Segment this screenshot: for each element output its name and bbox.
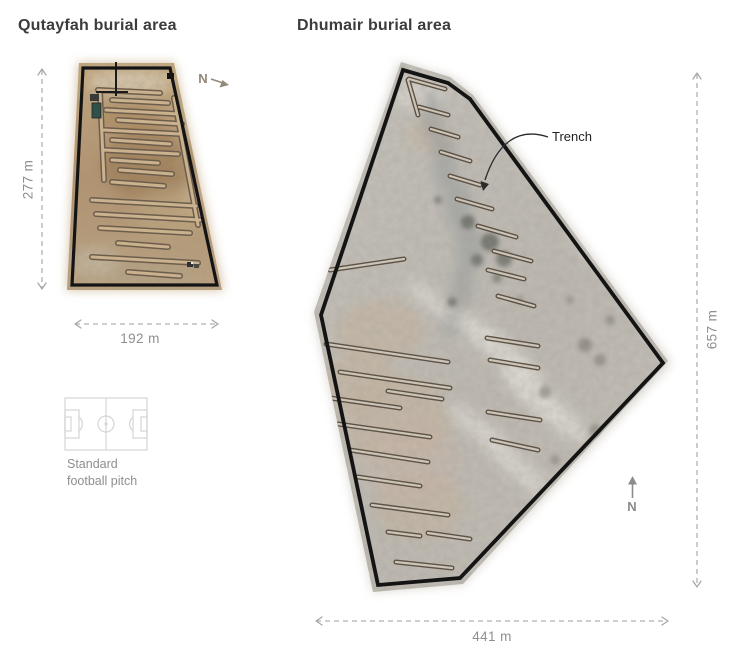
ground-object	[92, 103, 101, 118]
map-graphics	[0, 0, 733, 655]
dhumair-title: Dhumair burial area	[297, 17, 451, 35]
football-pitch-legend-line2: football pitch	[67, 473, 137, 490]
football-pitch-legend-line1: Standard	[67, 456, 137, 473]
dhumair-satellite-image	[310, 58, 675, 598]
qutayfah-boundary-notch	[167, 73, 174, 79]
trench-annotation-label: Trench	[552, 129, 592, 144]
qutayfah-satellite-image	[60, 55, 230, 300]
football-pitch-legend-label: Standard football pitch	[67, 456, 137, 490]
ground-object	[194, 264, 199, 268]
dhumair-width-label: 441 m	[462, 629, 522, 644]
football-pitch-icon	[65, 398, 147, 450]
qutayfah-width-label: 192 m	[110, 331, 170, 346]
qutayfah-height-label: 277 m	[21, 160, 36, 200]
ground-object	[191, 262, 193, 264]
qutayfah-north-arrow	[211, 79, 229, 88]
dhumair-north-letter: N	[625, 499, 639, 514]
ground-object	[90, 94, 99, 101]
burial-areas-infographic: Qutayfah burial area Dhumair burial area…	[0, 0, 733, 655]
qutayfah-title: Qutayfah burial area	[18, 17, 177, 35]
qutayfah-north-letter: N	[196, 71, 210, 86]
dhumair-height-label: 657 m	[705, 310, 720, 350]
dhumair-north-arrow	[628, 476, 637, 498]
